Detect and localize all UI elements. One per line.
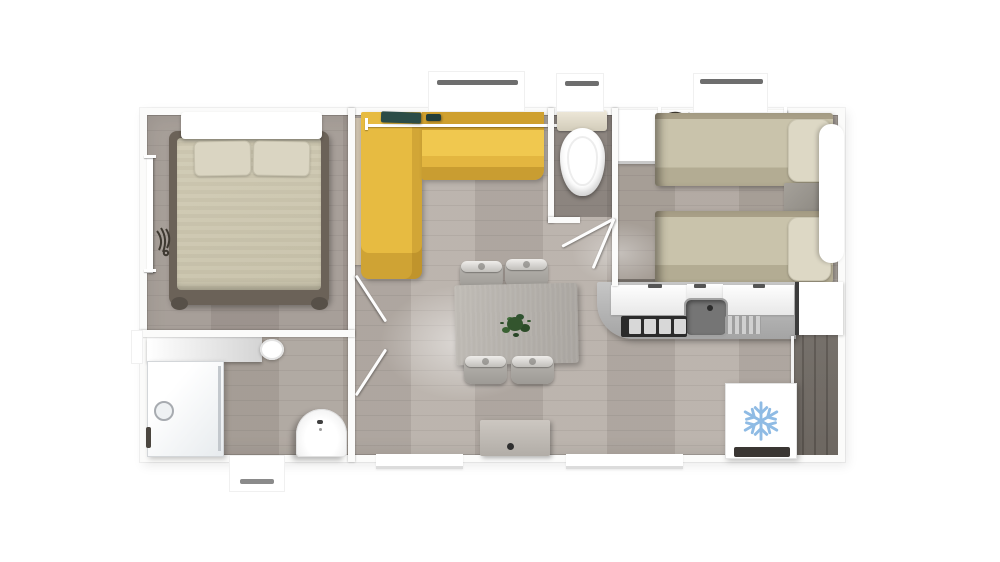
hangers-icon (152, 226, 174, 260)
hob-burner (659, 319, 671, 334)
window-bar (240, 479, 274, 484)
vanity-counter (147, 337, 262, 362)
sofa-chaise-left (361, 112, 422, 279)
cabinet-handle (753, 284, 765, 288)
sill-decor-item (381, 111, 421, 123)
top-wc-window (556, 73, 604, 112)
twin-headboard-panel (819, 124, 844, 263)
twin-wardrobe (617, 110, 658, 164)
wall-master-living (348, 108, 355, 462)
kitchen-sink (684, 298, 728, 337)
wall-wc-right (612, 108, 618, 286)
kitchen-cabinet-right (723, 285, 794, 315)
rail-end-tick (144, 155, 156, 158)
top-living-window (428, 71, 525, 112)
shower-drain (154, 401, 174, 421)
double-bed-headboard (181, 112, 322, 139)
wall-wc-bottom (548, 217, 580, 223)
hob-burner (674, 319, 686, 334)
sofa-bench-top (422, 112, 544, 180)
bottom-kitchen-opening (566, 454, 683, 469)
window-bar (700, 79, 763, 84)
floor-plan-scene (0, 0, 1000, 562)
shower-door-frame (218, 366, 221, 451)
bed-foot-right (311, 297, 328, 310)
pedestal-washbasin (296, 409, 347, 457)
sink-faucet (707, 305, 713, 311)
sill-end-tick (365, 118, 368, 130)
entry-mat (734, 447, 790, 457)
hob-burner (644, 319, 656, 334)
pillow-left (194, 141, 252, 177)
bottom-bathroom-window (229, 455, 285, 492)
wall-bathroom-top (140, 330, 355, 337)
pillow-right (253, 141, 311, 177)
dining-chair (464, 356, 507, 384)
plant-centerpiece (507, 317, 523, 331)
cabinet-handle (694, 284, 706, 288)
left-bathroom-stub (131, 330, 143, 364)
sill-decor-item-small (426, 114, 441, 121)
kitchen-cabinet-left (611, 285, 687, 315)
bed-foot-left (171, 297, 188, 310)
hob-burner (629, 319, 641, 334)
cabinet-handle (648, 284, 662, 288)
rail-end-tick (144, 269, 156, 272)
window-bar (565, 81, 599, 86)
dining-chair (511, 356, 554, 384)
basin-faucet (317, 420, 323, 424)
snowflake-icon (738, 398, 784, 444)
sideboard (480, 420, 550, 456)
bottom-living-opening (376, 454, 463, 469)
vanity-sink (260, 339, 284, 360)
shower-hinge (146, 427, 151, 448)
sideboard-knob (507, 443, 514, 450)
hob-4-burners (621, 316, 687, 337)
dark-floor-area (792, 334, 838, 455)
window-bar (437, 80, 518, 85)
tall-cabinet (795, 282, 843, 335)
basin-drain-dot (319, 428, 322, 431)
wall-wc-left (548, 108, 554, 223)
dish-drainer (725, 316, 761, 334)
